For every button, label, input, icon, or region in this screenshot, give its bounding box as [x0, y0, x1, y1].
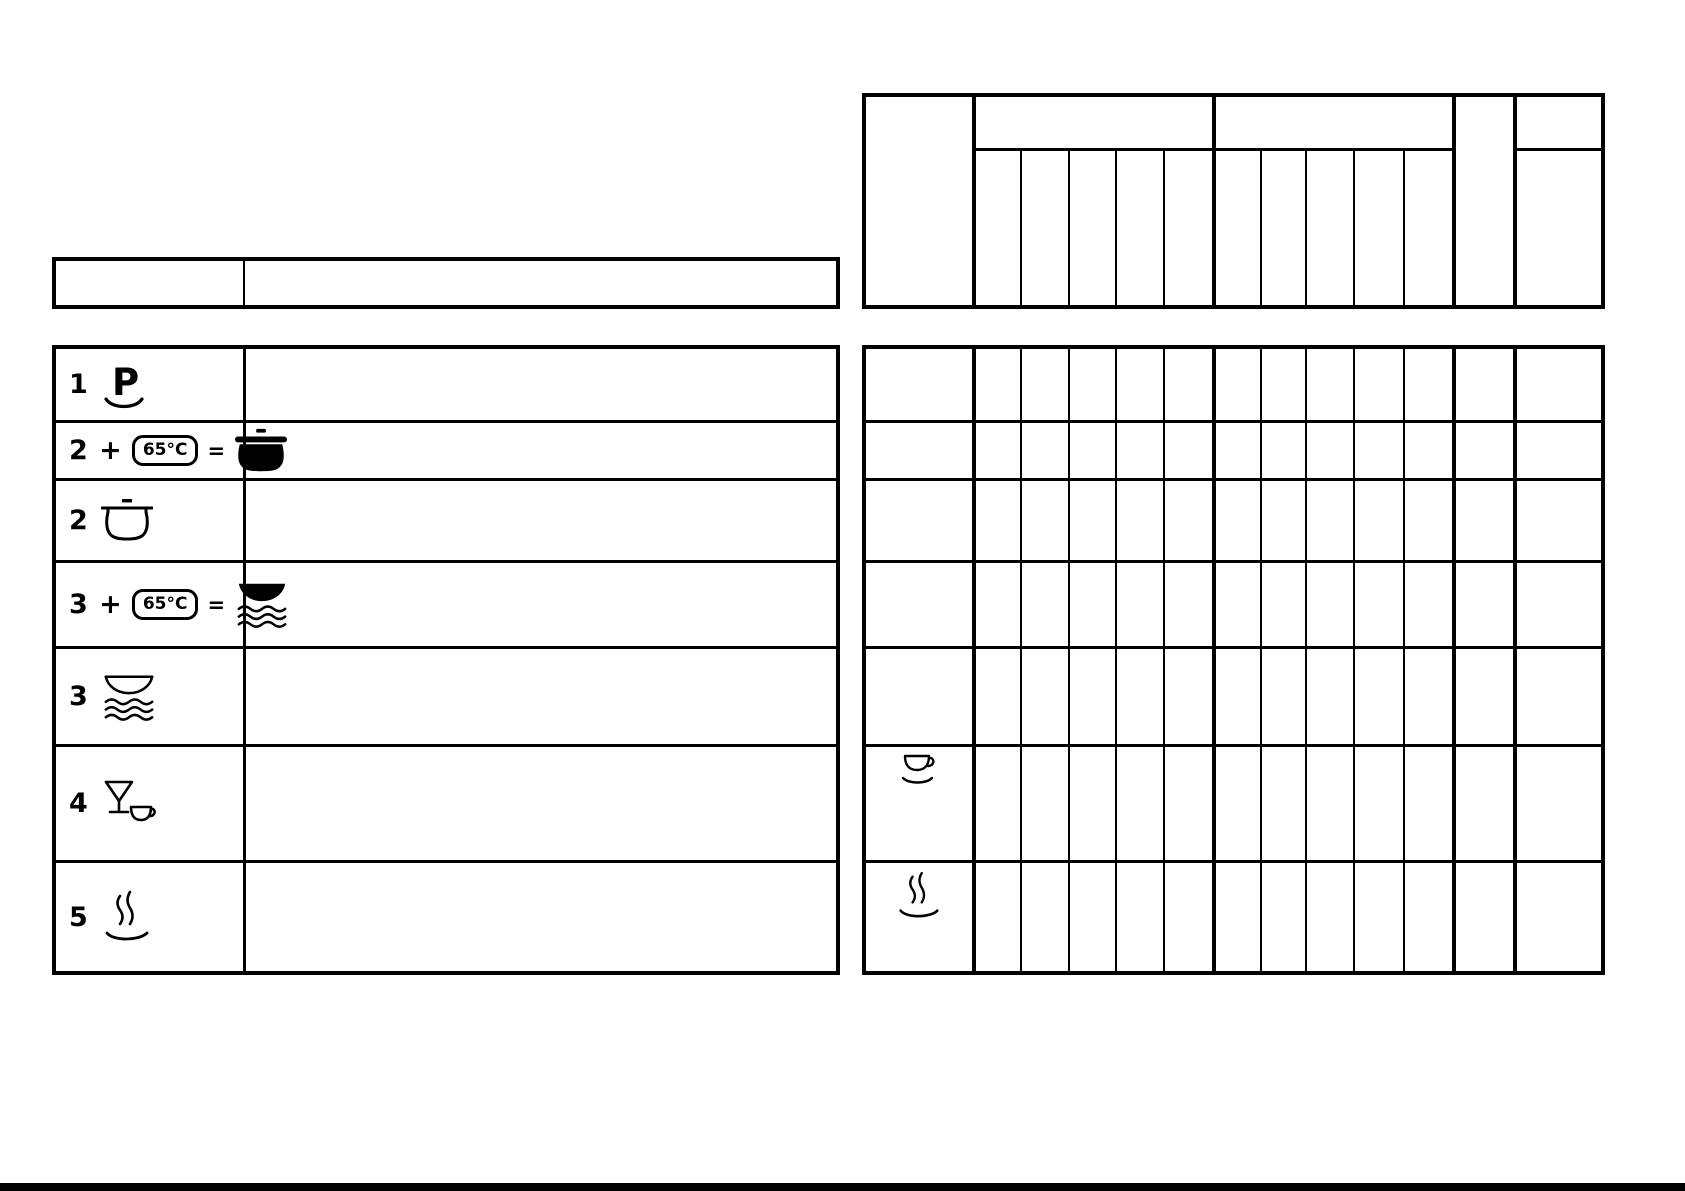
legend-table: 1 P 2 + 65°C = 2 [52, 345, 840, 975]
pot-outline-icon [101, 499, 153, 543]
legend-row-3-description-cell [246, 481, 836, 560]
legend-header-description-cell [245, 261, 836, 305]
legend-row-4-symbol-cell: 3 + 65°C = [56, 563, 256, 646]
table-line [866, 646, 1601, 649]
glass-and-cup-icon [101, 779, 157, 829]
plates-outline-icon [101, 673, 157, 721]
temp-badge: 65°C [132, 435, 199, 466]
table-line [972, 97, 976, 305]
legend-row-2-symbol-cell: 2 + 65°C = [56, 423, 256, 478]
legend-row-5-symbol-cell: 3 [56, 649, 256, 744]
temp-badge: 65°C [132, 589, 199, 620]
table-line [1403, 148, 1405, 305]
program-number: 3 + [69, 589, 123, 620]
legend-row-1-symbol-cell: 1 P [56, 349, 256, 420]
legend-row-7-description-cell [246, 863, 836, 971]
plate-p-icon: P [99, 359, 149, 411]
table-line [866, 478, 1601, 481]
table-line [1513, 148, 1601, 151]
program-grid-body-table [862, 345, 1605, 975]
table-line [1020, 148, 1022, 305]
table-line [1452, 97, 1456, 305]
program-number: 3 [69, 681, 89, 712]
table-line [1513, 97, 1517, 305]
program-grid-header-table [862, 93, 1605, 309]
table-line [1305, 349, 1307, 971]
legend-row-1-description-cell [246, 349, 836, 420]
legend-row-6-symbol-cell: 4 [56, 747, 256, 860]
program-number: 2 + [69, 435, 123, 466]
table-line [1403, 349, 1405, 971]
program-number: 1 [69, 369, 89, 400]
table-line [866, 860, 1601, 863]
table-line [1068, 349, 1070, 971]
table-line [1020, 349, 1022, 971]
table-line [1353, 349, 1355, 971]
svg-text:P: P [112, 361, 139, 404]
table-line [866, 420, 1601, 423]
table-line [972, 349, 976, 971]
table-line [972, 148, 1456, 151]
table-line [1260, 349, 1262, 971]
table-line [1068, 148, 1070, 305]
page-bottom-rule [0, 1183, 1685, 1191]
table-line [866, 744, 1601, 747]
table-line [1115, 349, 1117, 971]
legend-row-3-symbol-cell: 2 [56, 481, 256, 560]
table-line [1163, 148, 1165, 305]
legend-row-2-description-cell [246, 423, 836, 478]
program-number: 4 [69, 788, 89, 819]
table-line [1212, 349, 1216, 971]
program-number: 5 [69, 902, 89, 933]
table-line [1115, 148, 1117, 305]
table-line [1163, 349, 1165, 971]
table-line [1212, 97, 1216, 305]
table-line [1513, 349, 1517, 971]
manual-page: 1 P 2 + 65°C = 2 [0, 0, 1685, 1191]
grid-program-cell-row-7 [866, 863, 972, 979]
table-line [1452, 349, 1456, 971]
legend-row-5-description-cell [246, 649, 836, 744]
legend-row-7-symbol-cell: 5 [56, 863, 256, 971]
program-number: 2 [69, 505, 89, 536]
legend-header-symbol-cell [56, 261, 243, 305]
table-line [1260, 148, 1262, 305]
equals-sign: = [207, 593, 225, 617]
steam-dish-icon [103, 890, 151, 944]
legend-row-4-description-cell [246, 563, 836, 646]
grid-program-cell-row-6 [866, 747, 972, 866]
equals-sign: = [207, 439, 225, 463]
legend-row-6-description-cell [246, 747, 836, 860]
legend-header-table [52, 257, 840, 309]
table-line [866, 560, 1601, 563]
cup-saucer-icon [899, 753, 939, 789]
table-line [1305, 148, 1307, 305]
steam-dish-icon [897, 871, 941, 921]
table-line [1353, 148, 1355, 305]
